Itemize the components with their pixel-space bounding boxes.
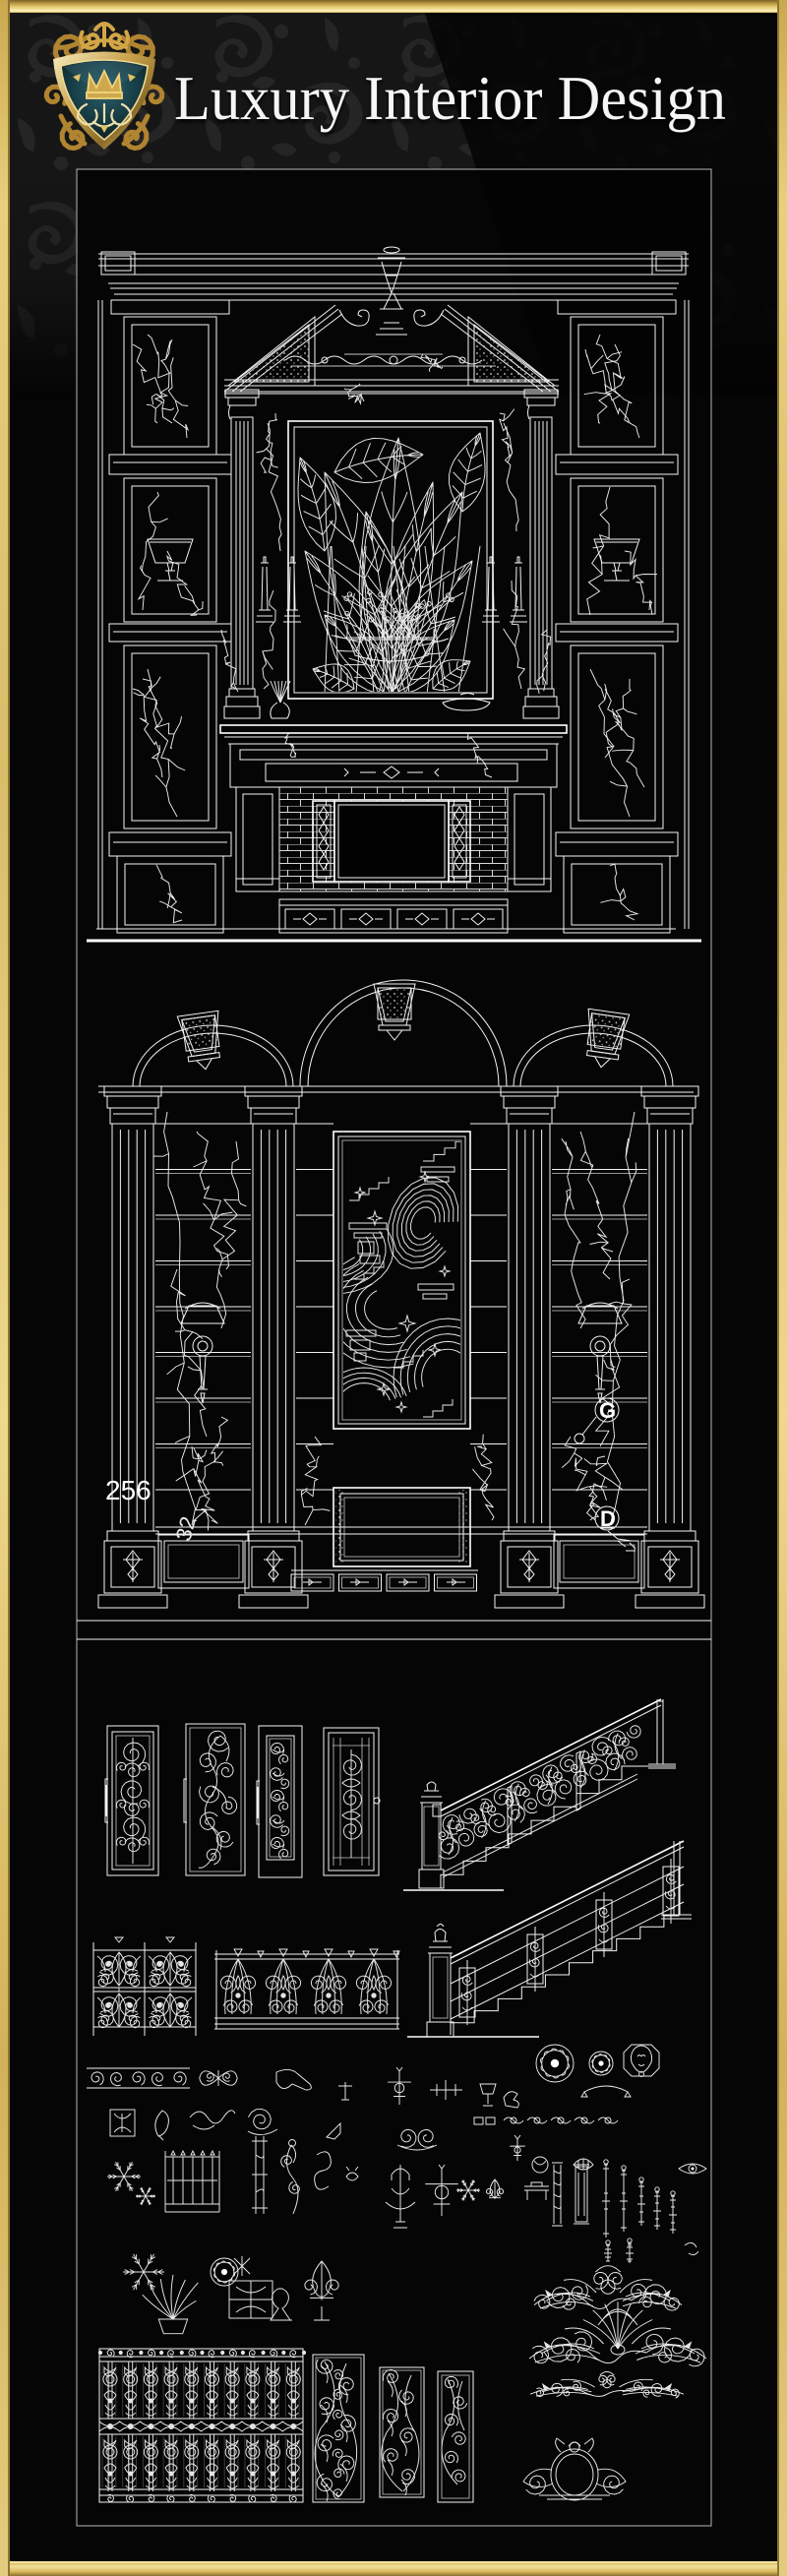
svg-text:Luxury Interior Design: Luxury Interior Design (174, 63, 726, 133)
svg-text:256: 256 (105, 1475, 151, 1505)
svg-text:D: D (600, 1506, 616, 1531)
svg-text:G: G (599, 1398, 616, 1423)
